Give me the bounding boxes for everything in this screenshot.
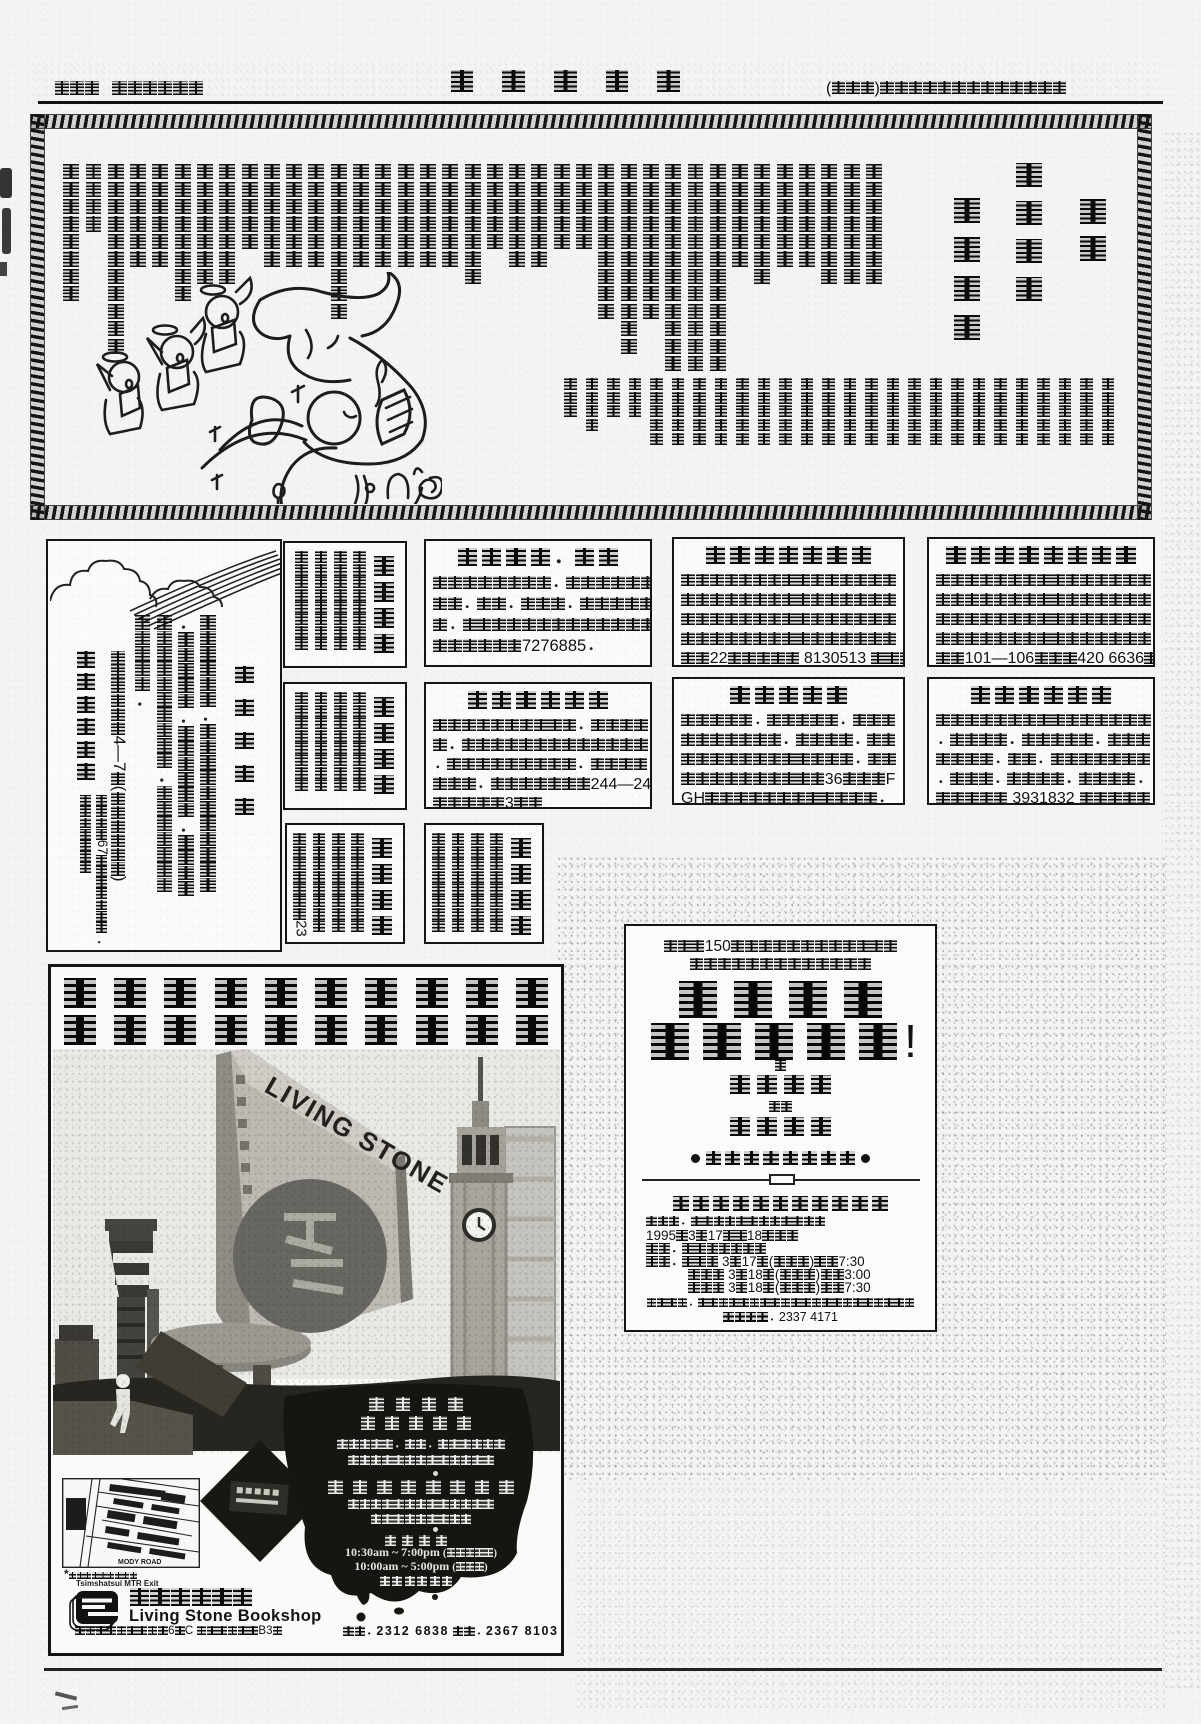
svg-text:MODY ROAD: MODY ROAD <box>118 1559 161 1566</box>
